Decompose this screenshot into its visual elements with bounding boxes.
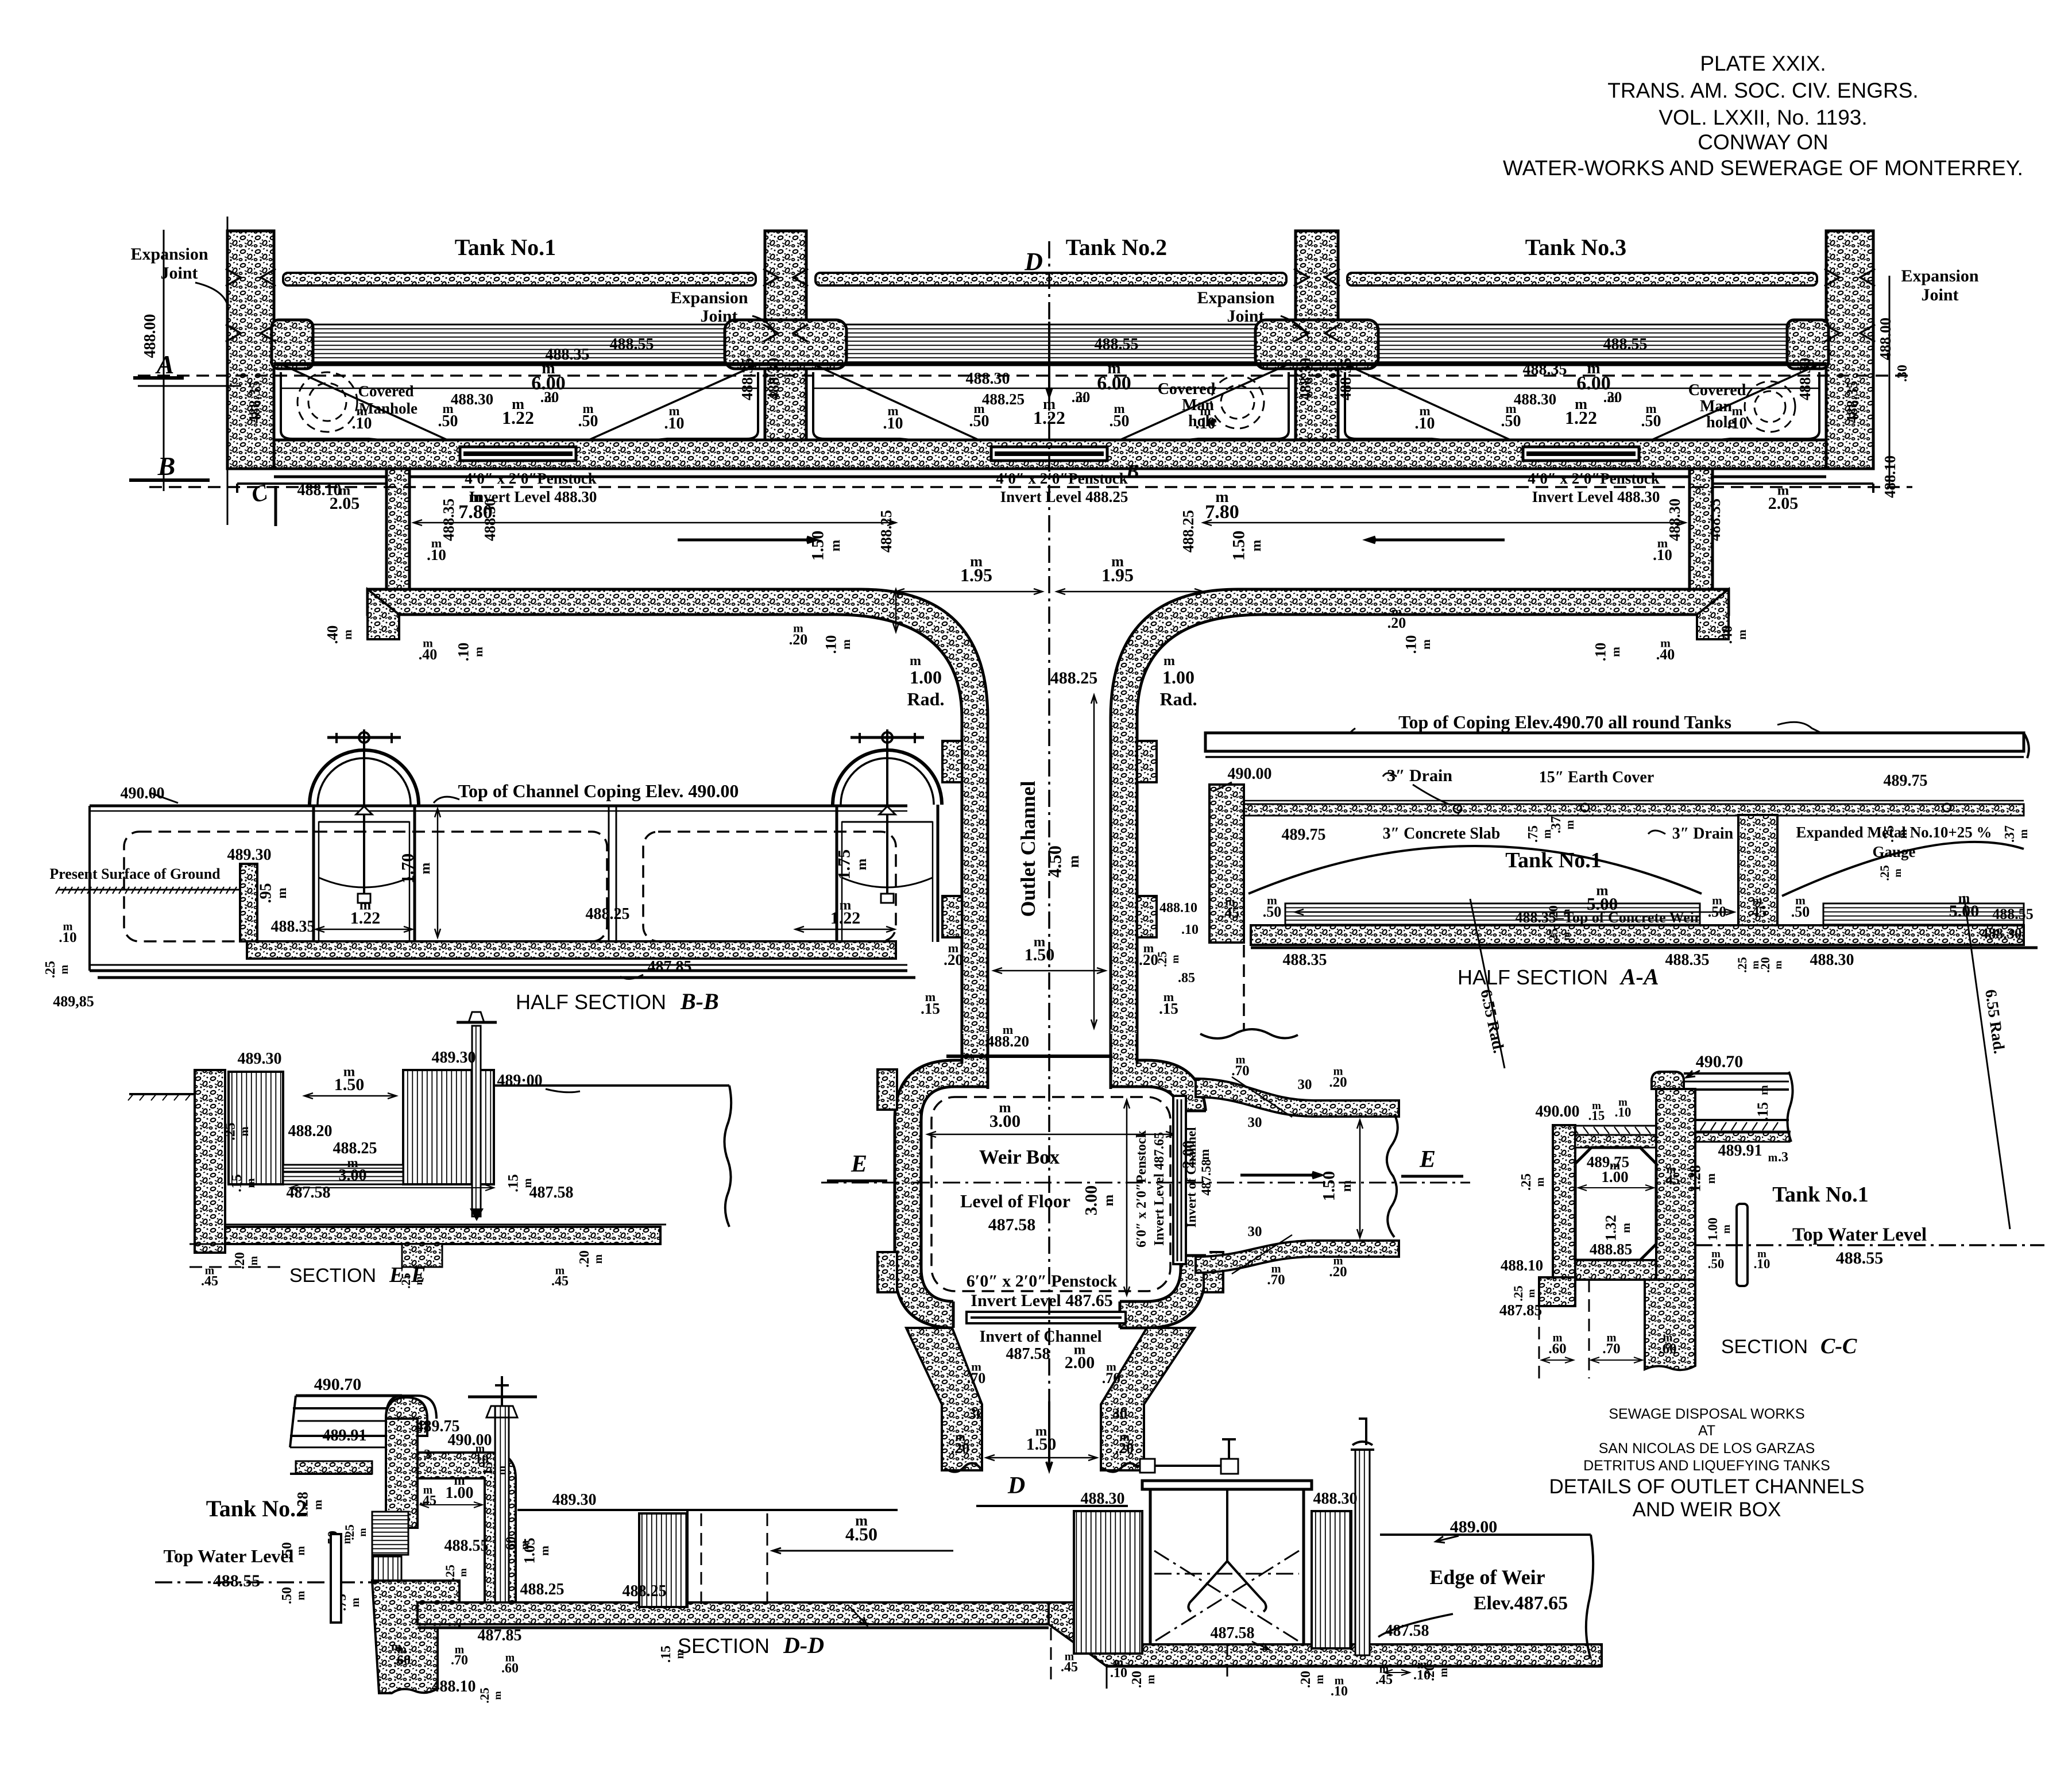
svg-text:Present Surface of Ground: Present Surface of Ground — [49, 866, 221, 882]
svg-text:m: m — [471, 647, 485, 657]
svg-text:.50: .50 — [438, 412, 458, 430]
svg-text:DETRITUS AND LIQUEFYING TANKS: DETRITUS AND LIQUEFYING TANKS — [1583, 1458, 1830, 1474]
svg-text:490.00: 490.00 — [448, 1431, 492, 1449]
svg-text:SEWAGE DISPOSAL WORKS: SEWAGE DISPOSAL WORKS — [1609, 1406, 1804, 1422]
svg-text:.60: .60 — [1659, 1341, 1676, 1357]
svg-text:Tank No.2: Tank No.2 — [1066, 234, 1167, 260]
svg-text:489.75: 489.75 — [1884, 772, 1928, 790]
svg-text:1.22: 1.22 — [350, 909, 381, 928]
svg-text:.20: .20 — [577, 1250, 592, 1268]
svg-text:.45: .45 — [201, 1274, 218, 1289]
svg-text:.20: .20 — [1546, 905, 1560, 921]
svg-text:Tank No.1: Tank No.1 — [1772, 1183, 1869, 1207]
svg-text:.95: .95 — [257, 883, 275, 903]
svg-text:Invert Level 488.30: Invert Level 488.30 — [1532, 488, 1660, 505]
svg-text:m: m — [1525, 1289, 1537, 1297]
svg-text:.50: .50 — [1501, 412, 1521, 430]
svg-text:488.55: 488.55 — [1992, 906, 2034, 922]
svg-text:.75: .75 — [1882, 825, 1897, 843]
svg-text:3″ Concrete Slab: 3″ Concrete Slab — [1383, 825, 1501, 843]
svg-text:Top of Coping Elev.490.70 all: Top of Coping Elev.490.70 all round Tank… — [1398, 712, 1731, 732]
svg-text:.25: .25 — [1877, 865, 1892, 881]
svg-text:VOL. LXXII, No. 1193.: VOL. LXXII, No. 1193. — [1659, 106, 1867, 129]
svg-text:3″ Drain: 3″ Drain — [1672, 825, 1734, 843]
svg-text:Invert Level 487.65: Invert Level 487.65 — [971, 1291, 1112, 1310]
svg-text:1.50: 1.50 — [1320, 1171, 1339, 1202]
svg-text:1.22: 1.22 — [830, 909, 861, 928]
svg-text:.70: .70 — [1267, 1272, 1285, 1288]
svg-text:m: m — [1564, 820, 1576, 829]
svg-text:.25: .25 — [1735, 957, 1749, 973]
svg-text:.10: .10 — [1415, 415, 1435, 432]
svg-text:.40: .40 — [1718, 625, 1735, 644]
svg-text:WATER-WORKS AND SEWERAGE OF MO: WATER-WORKS AND SEWERAGE OF MONTERREY. — [1503, 156, 2023, 180]
svg-text:.37: .37 — [2003, 825, 2017, 843]
svg-text:m: m — [496, 1465, 508, 1475]
svg-text:488.35: 488.35 — [739, 358, 756, 400]
svg-text:.37: .37 — [1549, 816, 1564, 833]
svg-text:488.35: 488.35 — [546, 346, 590, 364]
svg-text:.10: .10 — [455, 643, 471, 662]
svg-text:30: 30 — [969, 1405, 984, 1422]
svg-text:488.35: 488.35 — [1337, 358, 1354, 400]
svg-text:m: m — [1897, 829, 1909, 839]
svg-text:.25: .25 — [43, 961, 58, 978]
svg-text:.20: .20 — [789, 631, 808, 648]
svg-text:1.00: 1.00 — [1162, 667, 1195, 687]
svg-text:.20: .20 — [233, 1252, 248, 1269]
svg-text:.20: .20 — [1758, 957, 1772, 973]
svg-text:.60: .60 — [393, 1653, 411, 1668]
svg-text:7.80: 7.80 — [458, 501, 493, 523]
svg-text:488.55: 488.55 — [1095, 335, 1139, 353]
svg-text:2.05: 2.05 — [330, 494, 360, 513]
svg-text:Joint: Joint — [1227, 307, 1264, 326]
svg-text:.70: .70 — [1102, 1370, 1121, 1386]
svg-text:488.25: 488.25 — [982, 391, 1025, 408]
svg-text:4′0″ x 2′0″Penstock: 4′0″ x 2′0″Penstock — [465, 470, 597, 487]
svg-text:m: m — [854, 858, 869, 870]
svg-text:Rad.: Rad. — [907, 689, 945, 709]
svg-text:4.50: 4.50 — [845, 1524, 877, 1544]
svg-text:489,85: 489,85 — [53, 993, 94, 1010]
svg-text:.50: .50 — [969, 412, 989, 430]
svg-text:488.30: 488.30 — [966, 370, 1010, 388]
svg-text:m: m — [538, 1546, 551, 1556]
svg-text:488.35: 488.35 — [1283, 951, 1327, 969]
svg-text:m: m — [1768, 1152, 1778, 1164]
svg-text:.10: .10 — [59, 930, 76, 945]
svg-text:m: m — [1437, 1667, 1450, 1677]
svg-text:B-B: B-B — [680, 988, 719, 1014]
svg-text:1.28: 1.28 — [294, 1492, 311, 1518]
svg-text:Top Water Level: Top Water Level — [164, 1546, 294, 1566]
svg-text:D-D: D-D — [783, 1632, 824, 1658]
svg-text:.45: .45 — [551, 1274, 569, 1289]
svg-text:m: m — [1619, 1223, 1633, 1233]
svg-text:m: m — [521, 1178, 534, 1188]
svg-text:.10: .10 — [1110, 1666, 1127, 1681]
svg-text:.10: .10 — [883, 415, 903, 432]
svg-text:Tank No.1: Tank No.1 — [1505, 848, 1602, 872]
svg-text:.10: .10 — [1653, 546, 1672, 563]
svg-text:488.85: 488.85 — [1590, 1241, 1632, 1258]
svg-text:490.00: 490.00 — [121, 785, 165, 802]
svg-text:.60: .60 — [504, 1536, 519, 1554]
svg-text:Rad.: Rad. — [1160, 689, 1197, 709]
svg-text:489.75: 489.75 — [1282, 826, 1326, 844]
svg-text:m: m — [349, 1597, 362, 1607]
svg-text:490.70: 490.70 — [314, 1375, 362, 1394]
svg-text:.50: .50 — [1708, 903, 1727, 920]
svg-text:m: m — [1757, 1085, 1771, 1095]
svg-text:.25: .25 — [342, 1524, 357, 1540]
svg-text:.45: .45 — [1221, 905, 1240, 921]
svg-text:m: m — [2017, 829, 2030, 839]
svg-text:487.58: 487.58 — [1006, 1345, 1050, 1363]
svg-text:m: m — [1145, 1674, 1157, 1684]
svg-text:488.35: 488.35 — [440, 499, 457, 541]
svg-text:488.10: 488.10 — [1501, 1257, 1543, 1274]
svg-text:489.91: 489.91 — [1718, 1142, 1762, 1160]
svg-text:488.25: 488.25 — [877, 510, 895, 553]
svg-text:487.58: 487.58 — [1385, 1622, 1429, 1640]
svg-text:1.95: 1.95 — [1101, 565, 1134, 585]
svg-text:.30: .30 — [1603, 389, 1622, 405]
svg-text:488.30: 488.30 — [1081, 1490, 1125, 1508]
svg-text:.85: .85 — [1178, 971, 1195, 986]
svg-text:.15: .15 — [1159, 1000, 1178, 1017]
svg-text:.45: .45 — [1748, 903, 1767, 920]
svg-text:1.50: 1.50 — [1025, 945, 1055, 964]
svg-text:m: m — [1248, 539, 1264, 551]
svg-text:.20: .20 — [1130, 1671, 1145, 1688]
svg-text:5.00: 5.00 — [1949, 902, 1980, 921]
svg-text:m: m — [1892, 868, 1903, 877]
svg-text:7.80: 7.80 — [1205, 501, 1239, 523]
svg-text:3: 3 — [424, 1447, 431, 1462]
svg-text:488.35: 488.35 — [1665, 951, 1710, 969]
svg-text:6.00: 6.00 — [1097, 373, 1131, 394]
svg-text:m: m — [1735, 629, 1749, 640]
svg-text:Covered: Covered — [1158, 380, 1216, 398]
svg-text:1.22: 1.22 — [1033, 407, 1065, 428]
svg-text:488.25: 488.25 — [520, 1581, 565, 1598]
svg-text:HALF SECTION: HALF SECTION — [516, 990, 666, 1014]
svg-text:Expansion: Expansion — [1197, 288, 1274, 307]
svg-text:488.30: 488.30 — [1981, 925, 2022, 942]
svg-text:.10: .10 — [1754, 1257, 1771, 1271]
svg-text:.10: .10 — [1402, 635, 1419, 654]
svg-text:.50: .50 — [1708, 1257, 1725, 1271]
svg-text:.10: .10 — [1331, 1684, 1348, 1699]
svg-text:SECTION: SECTION — [1721, 1336, 1808, 1358]
svg-text:489.30: 489.30 — [432, 1049, 476, 1067]
svg-text:m: m — [492, 1691, 503, 1700]
svg-text:Covered: Covered — [358, 383, 414, 400]
svg-text:B: B — [157, 451, 176, 481]
svg-text:1.50: 1.50 — [1026, 1435, 1057, 1454]
svg-text:Joint: Joint — [160, 264, 198, 283]
svg-text:30: 30 — [1248, 1224, 1262, 1239]
svg-text:1.22: 1.22 — [1565, 407, 1597, 428]
svg-text:m: m — [1703, 1173, 1718, 1184]
svg-text:.10: .10 — [664, 415, 685, 432]
svg-text:.3: .3 — [1778, 1150, 1788, 1165]
svg-text:.40: .40 — [1656, 646, 1675, 663]
svg-text:.25: .25 — [443, 1565, 457, 1581]
svg-text:488.10: 488.10 — [1159, 901, 1197, 916]
svg-text:m: m — [341, 629, 354, 640]
svg-text:488.30: 488.30 — [1810, 951, 1854, 969]
svg-text:m: m — [592, 1254, 605, 1264]
svg-text:488.30: 488.30 — [1297, 358, 1314, 400]
svg-text:488.30: 488.30 — [1514, 391, 1556, 408]
svg-text:m: m — [1772, 960, 1784, 969]
svg-text:1.50: 1.50 — [1230, 531, 1248, 561]
svg-text:1.00: 1.00 — [446, 1484, 474, 1502]
svg-text:487.85: 487.85 — [648, 958, 692, 976]
svg-text:487.58: 487.58 — [529, 1184, 574, 1202]
svg-text:488.20: 488.20 — [288, 1122, 333, 1140]
svg-text:.70: .70 — [967, 1370, 986, 1386]
svg-text:.25: .25 — [477, 1687, 492, 1704]
svg-text:Joint: Joint — [1921, 285, 1958, 304]
svg-text:SECTION: SECTION — [289, 1265, 376, 1287]
svg-text:488.30: 488.30 — [1666, 499, 1683, 541]
svg-text:.40: .40 — [324, 625, 341, 644]
svg-text:1.75: 1.75 — [835, 849, 854, 880]
svg-text:m: m — [295, 1546, 307, 1555]
svg-text:m: m — [1065, 855, 1082, 868]
svg-text:.45: .45 — [1663, 1173, 1680, 1188]
svg-text:488.30: 488.30 — [765, 358, 782, 400]
svg-text:488.00: 488.00 — [141, 314, 159, 358]
svg-text:1.00: 1.00 — [1601, 1168, 1628, 1185]
svg-text:m: m — [1419, 639, 1433, 650]
svg-text:Top of Channel Coping Elev. 49: Top of Channel Coping Elev. 490.00 — [458, 781, 739, 801]
svg-text:m: m — [1197, 1149, 1212, 1160]
svg-text:m: m — [245, 1178, 257, 1188]
svg-text:m: m — [1163, 654, 1175, 669]
svg-text:1.95: 1.95 — [960, 565, 992, 585]
svg-text:1.70: 1.70 — [399, 853, 418, 884]
svg-text:m: m — [1339, 1180, 1354, 1192]
svg-text:Tank No.1: Tank No.1 — [455, 234, 556, 260]
svg-text:488.10: 488.10 — [432, 1678, 476, 1695]
svg-text:.50: .50 — [280, 1587, 295, 1604]
svg-text:6′0″ x 2′0″Penstock: 6′0″ x 2′0″Penstock — [1134, 1130, 1149, 1247]
svg-text:.50: .50 — [578, 412, 598, 430]
svg-text:TRANS. AM. SOC. CIV. ENGRS.: TRANS. AM. SOC. CIV. ENGRS. — [1607, 79, 1918, 102]
svg-text:Invert Level 488.25: Invert Level 488.25 — [1000, 488, 1128, 505]
svg-text:15″ Earth Cover: 15″ Earth Cover — [1539, 768, 1654, 786]
svg-text:.70: .70 — [451, 1653, 468, 1668]
svg-text:AT: AT — [1698, 1423, 1715, 1439]
svg-text:Expansion: Expansion — [1901, 266, 1978, 285]
svg-text:m: m — [839, 639, 853, 650]
svg-text:2.00: 2.00 — [1180, 1141, 1197, 1169]
svg-text:1.32: 1.32 — [1602, 1215, 1619, 1241]
svg-text:.10: .10 — [352, 415, 372, 432]
svg-text:m: m — [1560, 932, 1572, 940]
svg-text:.15: .15 — [659, 1646, 674, 1663]
svg-text:Edge of Weir: Edge of Weir — [1429, 1566, 1545, 1589]
svg-text:.30: .30 — [540, 389, 559, 405]
svg-text:.50: .50 — [1110, 412, 1130, 430]
svg-text:.10: .10 — [1196, 415, 1216, 432]
svg-text:E: E — [851, 1151, 867, 1177]
svg-text:488.35: 488.35 — [271, 918, 315, 936]
svg-text:m: m — [1313, 1674, 1326, 1684]
svg-text:.20: .20 — [1298, 1671, 1313, 1688]
svg-text:489.30: 489.30 — [552, 1491, 597, 1509]
svg-text:.15: .15 — [229, 1174, 244, 1192]
svg-text:.10: .10 — [1615, 1105, 1632, 1119]
svg-text:488.55: 488.55 — [1603, 335, 1648, 353]
svg-text:490.00: 490.00 — [1228, 765, 1272, 783]
svg-text:.75: .75 — [1526, 825, 1541, 843]
svg-text:m: m — [357, 1528, 368, 1536]
svg-text:HALF SECTION: HALF SECTION — [1458, 965, 1608, 989]
svg-text:Tank No.2: Tank No.2 — [206, 1496, 307, 1521]
svg-text:488.25: 488.25 — [586, 905, 630, 923]
svg-text:DETAILS OF OUTLET CHANNELS: DETAILS OF OUTLET CHANNELS — [1549, 1476, 1864, 1498]
svg-text:1.00: 1.00 — [1706, 1218, 1720, 1241]
svg-text:488.30: 488.30 — [451, 391, 493, 408]
svg-text:m: m — [1721, 1225, 1733, 1234]
svg-text:.10: .10 — [1592, 643, 1609, 662]
svg-text:m: m — [1169, 955, 1181, 963]
svg-text:488.35: 488.35 — [1523, 361, 1567, 378]
svg-text:1.50: 1.50 — [809, 531, 828, 561]
svg-text:.60: .60 — [1548, 1341, 1566, 1357]
svg-text:.70: .70 — [1602, 1341, 1620, 1357]
svg-text:.50: .50 — [280, 1542, 295, 1559]
svg-text:488.25: 488.25 — [1050, 669, 1098, 687]
svg-text:Invert Level 487.65: Invert Level 487.65 — [1152, 1132, 1167, 1246]
svg-text:.70: .70 — [1231, 1063, 1249, 1079]
svg-text:488.30: 488.30 — [1313, 1490, 1358, 1508]
svg-text:489·00: 489·00 — [497, 1072, 542, 1090]
svg-text:2.05: 2.05 — [1768, 494, 1799, 513]
svg-text:m: m — [238, 1126, 251, 1136]
svg-text:m: m — [248, 1256, 260, 1265]
svg-text:SAN NICOLAS DE LOS GARZAS: SAN NICOLAS DE LOS GARZAS — [1599, 1440, 1815, 1457]
svg-text:D: D — [1024, 248, 1043, 276]
svg-text:1.00: 1.00 — [910, 667, 942, 687]
svg-text:487.58: 487.58 — [1199, 1159, 1213, 1195]
svg-text:Outlet Channel: Outlet Channel — [1016, 781, 1039, 917]
svg-text:.25: .25 — [1155, 951, 1169, 967]
svg-text:3.00: 3.00 — [339, 1167, 367, 1184]
svg-text:E-E: E-E — [389, 1263, 426, 1287]
svg-text:489.30: 489.30 — [227, 846, 272, 864]
svg-text:m: m — [828, 539, 843, 551]
svg-text:1.50: 1.50 — [334, 1075, 365, 1094]
svg-text:C-C: C-C — [1820, 1334, 1857, 1358]
svg-text:m: m — [1534, 1177, 1547, 1187]
svg-text:.50: .50 — [1263, 903, 1282, 920]
svg-text:.15: .15 — [1754, 1102, 1771, 1121]
svg-text:.20: .20 — [1387, 615, 1406, 631]
svg-text:488.55: 488.55 — [1836, 1249, 1884, 1268]
svg-text:SECTION: SECTION — [678, 1634, 770, 1658]
svg-text:.20: .20 — [1329, 1075, 1347, 1090]
svg-text:488.55: 488.55 — [444, 1537, 489, 1555]
svg-text:488.25: 488.25 — [1180, 510, 1197, 553]
svg-text:Gauge: Gauge — [1872, 843, 1915, 860]
svg-text:.15: .15 — [1588, 1108, 1605, 1123]
svg-text:m: m — [295, 1590, 307, 1600]
svg-text:.60: .60 — [501, 1661, 519, 1676]
svg-text:.30: .30 — [1072, 389, 1091, 405]
svg-text:Top Water Level: Top Water Level — [1792, 1225, 1927, 1245]
svg-text:.10: .10 — [1181, 922, 1199, 937]
svg-text:m: m — [418, 862, 433, 874]
svg-text:Expansion: Expansion — [670, 288, 748, 307]
svg-text:D: D — [1007, 1473, 1025, 1499]
svg-text:Man: Man — [1700, 397, 1732, 415]
svg-text:Tank No.3: Tank No.3 — [1525, 234, 1626, 260]
svg-text:m: m — [1560, 909, 1572, 917]
svg-text:m: m — [910, 654, 921, 669]
svg-text:1.05: 1.05 — [521, 1538, 538, 1564]
svg-text:488.30: 488.30 — [1796, 358, 1814, 400]
svg-text:m: m — [275, 887, 289, 898]
svg-text:B: B — [1126, 461, 1139, 482]
svg-text:.30: .30 — [1895, 365, 1910, 382]
svg-text:.15: .15 — [921, 1000, 940, 1017]
svg-text:.45: .45 — [419, 1493, 436, 1508]
svg-text:.45: .45 — [1061, 1660, 1078, 1675]
svg-text:4′0″ x 2′0″Penstock: 4′0″ x 2′0″Penstock — [996, 470, 1128, 487]
svg-text:.25: .25 — [1519, 1173, 1534, 1191]
svg-text:.25: .25 — [1546, 928, 1560, 944]
svg-text:30: 30 — [1248, 1115, 1262, 1130]
svg-text:487.58: 487.58 — [1211, 1624, 1255, 1642]
svg-text:.20: .20 — [944, 951, 963, 968]
svg-text:Weir Box: Weir Box — [979, 1146, 1060, 1168]
svg-text:Covered: Covered — [1688, 381, 1746, 399]
svg-text:487.58: 487.58 — [287, 1184, 331, 1202]
svg-text:489.91: 489.91 — [323, 1427, 367, 1444]
svg-text:.20: .20 — [1329, 1264, 1347, 1280]
svg-text:.10: .10 — [822, 635, 839, 654]
svg-text:m: m — [1609, 647, 1622, 657]
svg-text:.10: .10 — [1727, 415, 1748, 432]
svg-text:488.20: 488.20 — [987, 1033, 1029, 1050]
svg-text:.15: .15 — [505, 1174, 521, 1192]
svg-text:30: 30 — [1112, 1405, 1127, 1422]
svg-text:487.85: 487.85 — [1499, 1301, 1542, 1319]
svg-text:.25: .25 — [222, 1122, 238, 1140]
svg-text:.20: .20 — [951, 1440, 970, 1457]
svg-text:490.70: 490.70 — [1696, 1052, 1744, 1071]
svg-text:4′0″ x 2′0″Penstock: 4′0″ x 2′0″Penstock — [1528, 470, 1660, 487]
svg-text:.10: .10 — [427, 546, 446, 563]
svg-text:487.85: 487.85 — [478, 1627, 522, 1644]
svg-text:CONWAY ON: CONWAY ON — [1698, 130, 1829, 154]
svg-text:.20: .20 — [1115, 1440, 1134, 1457]
svg-text:.50: .50 — [1791, 903, 1810, 920]
svg-text:Expansion: Expansion — [130, 245, 208, 264]
svg-text:490.00: 490.00 — [1536, 1103, 1580, 1121]
svg-text:E: E — [1419, 1146, 1436, 1173]
svg-text:AND WEIR BOX: AND WEIR BOX — [1633, 1498, 1781, 1521]
svg-text:m: m — [311, 1500, 324, 1510]
svg-text:m: m — [1101, 1194, 1116, 1206]
